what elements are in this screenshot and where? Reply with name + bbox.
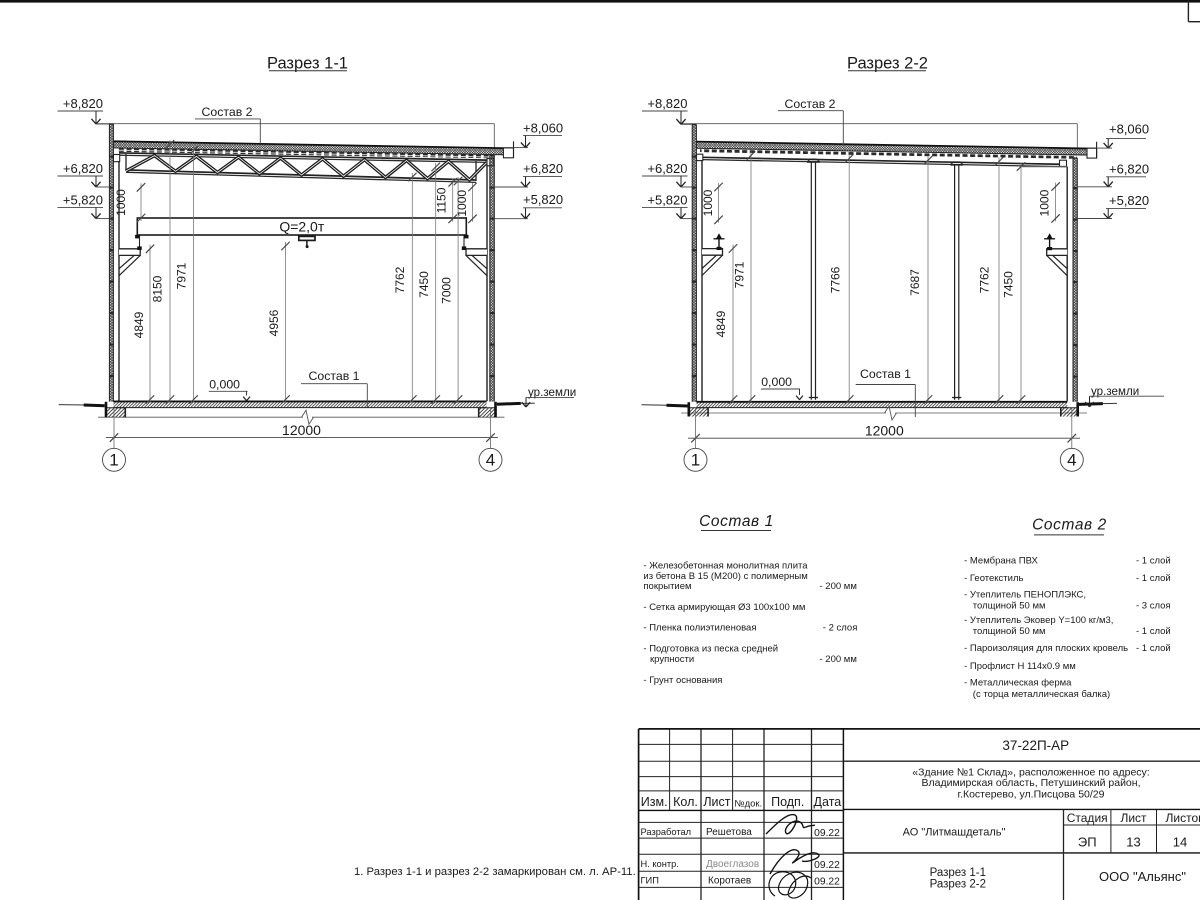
svg-text:14: 14	[1173, 835, 1187, 850]
svg-text:- 1 слой: - 1 слой	[1136, 643, 1171, 654]
svg-text:+6,820: +6,820	[1109, 162, 1149, 177]
svg-text:09.22: 09.22	[814, 876, 840, 887]
svg-text:ГИП: ГИП	[641, 875, 659, 885]
svg-text:1. Разрез 1-1 и разрез 2-2 зам: 1. Разрез 1-1 и разрез 2-2 замаркирован …	[354, 866, 636, 878]
svg-text:09.22: 09.22	[814, 828, 840, 839]
svg-text:Состав 1: Состав 1	[309, 369, 360, 383]
svg-text:Разрез 1-1: Разрез 1-1	[267, 55, 348, 73]
svg-text:7000: 7000	[439, 277, 453, 304]
svg-text:Состав 2: Состав 2	[202, 105, 253, 119]
svg-text:+5,820: +5,820	[63, 193, 103, 208]
svg-text:1000: 1000	[1037, 189, 1051, 216]
svg-text:4849: 4849	[132, 311, 146, 338]
svg-text:+6,820: +6,820	[523, 161, 563, 176]
svg-text:АО "Литмашдеталь": АО "Литмашдеталь"	[903, 827, 1006, 839]
svg-text:+6,820: +6,820	[647, 161, 687, 176]
svg-text:4: 4	[1067, 451, 1076, 470]
svg-text:7766: 7766	[829, 266, 843, 293]
svg-text:4956: 4956	[267, 309, 281, 336]
svg-text:1000: 1000	[114, 189, 128, 216]
svg-text:ООО "Альянс": ООО "Альянс"	[1099, 869, 1186, 884]
svg-text:+8,820: +8,820	[63, 96, 103, 111]
svg-text:7762: 7762	[978, 266, 992, 293]
svg-text:+5,820: +5,820	[1109, 193, 1149, 208]
svg-text:Разработал: Разработал	[641, 827, 692, 837]
svg-text:7687: 7687	[908, 269, 922, 296]
svg-text:- Мембрана ПВХ: - Мембрана ПВХ	[964, 556, 1038, 567]
svg-text:г.Костерево, ул.Писцова 50/29: г.Костерево, ул.Писцова 50/29	[958, 788, 1105, 800]
svg-text:- Металлическая ферма: - Металлическая ферма	[964, 678, 1072, 689]
svg-text:Лист: Лист	[1120, 811, 1147, 825]
svg-text:- 1 слой: - 1 слой	[1136, 556, 1171, 567]
svg-text:1: 1	[109, 451, 118, 470]
svg-text:Состав 2: Состав 2	[1032, 516, 1107, 533]
svg-text:Состав 2: Состав 2	[785, 97, 836, 111]
svg-text:толщиной 50 мм: толщиной 50 мм	[973, 626, 1046, 637]
svg-text:Стадия: Стадия	[1067, 811, 1108, 825]
svg-text:толщиной 50 мм: толщиной 50 мм	[973, 600, 1046, 611]
svg-text:13: 13	[1126, 835, 1140, 850]
svg-text:- 200 мм: - 200 мм	[820, 654, 857, 665]
svg-text:- 3 слоя: - 3 слоя	[1136, 600, 1171, 611]
svg-text:- Пароизоляция для плоских кро: - Пароизоляция для плоских кровель	[964, 643, 1128, 654]
svg-text:Подп.: Подп.	[771, 795, 804, 809]
svg-text:7450: 7450	[417, 271, 431, 298]
svg-text:Владимирская область, Петушинс: Владимирская область, Петушинский район,	[921, 777, 1140, 789]
svg-text:покрытием: покрытием	[643, 581, 691, 592]
svg-text:+5,820: +5,820	[647, 193, 687, 208]
svg-text:- Железобетонная монолитная п: - Железобетонная монолитная плита	[643, 560, 808, 571]
svg-text:Кол.: Кол.	[673, 795, 698, 809]
svg-text:№док.: №док.	[734, 799, 762, 810]
svg-text:Разрез 2-2: Разрез 2-2	[847, 55, 928, 73]
svg-text:ЭП: ЭП	[1078, 835, 1097, 850]
svg-text:- Пленка полиэтиленовая: - Пленка полиэтиленовая	[643, 623, 756, 634]
svg-text:- 200 мм: - 200 мм	[820, 581, 857, 592]
svg-text:Лист: Лист	[703, 795, 730, 809]
svg-text:- Геотекстиль: - Геотекстиль	[964, 573, 1023, 584]
svg-text:0,000: 0,000	[761, 375, 792, 389]
svg-text:(с торца металлическая балка): (с торца металлическая балка)	[973, 689, 1110, 700]
svg-text:4: 4	[486, 451, 495, 470]
svg-text:7762: 7762	[393, 266, 407, 293]
svg-text:8150: 8150	[151, 275, 165, 302]
svg-text:- Профлист Н 114x0.9 мм: - Профлист Н 114x0.9 мм	[964, 661, 1076, 672]
svg-text:1000: 1000	[701, 189, 715, 216]
svg-text:крупности: крупности	[650, 654, 694, 665]
svg-text:37-22П-АР: 37-22П-АР	[1002, 738, 1069, 753]
svg-text:Разрез 2-2: Разрез 2-2	[930, 879, 986, 891]
svg-text:- 1 слой: - 1 слой	[1136, 573, 1171, 584]
svg-text:- 2 слоя: - 2 слоя	[823, 623, 858, 634]
svg-text:Q=2,0т: Q=2,0т	[279, 219, 325, 235]
svg-text:Двоеглазов: Двоеглазов	[706, 859, 759, 870]
svg-text:- Утеплитель Эковер Y=100 кг/м: - Утеплитель Эковер Y=100 кг/м3,	[964, 615, 1113, 626]
svg-text:+6,820: +6,820	[63, 161, 103, 176]
svg-text:7971: 7971	[174, 262, 188, 289]
svg-text:12000: 12000	[282, 422, 321, 438]
svg-text:+8,060: +8,060	[523, 121, 563, 136]
svg-text:Состав 1: Состав 1	[699, 513, 774, 530]
svg-text:Дата: Дата	[814, 795, 842, 809]
svg-text:+8,820: +8,820	[647, 96, 687, 111]
svg-text:0,000: 0,000	[209, 377, 240, 391]
svg-text:7450: 7450	[1002, 271, 1016, 298]
svg-text:- 1 слой: - 1 слой	[1136, 626, 1171, 637]
svg-text:+5,820: +5,820	[523, 192, 563, 207]
svg-text:- Сетка армирующая Ø3 100x100: - Сетка армирующая Ø3 100x100 мм	[643, 602, 805, 613]
svg-text:+8,060: +8,060	[1109, 122, 1149, 137]
svg-text:Листов: Листов	[1166, 811, 1200, 825]
svg-text:1: 1	[691, 451, 700, 470]
svg-text:Состав 1: Состав 1	[860, 367, 911, 381]
svg-text:Изм.: Изм.	[641, 795, 668, 809]
svg-text:Разрез 1-1: Разрез 1-1	[930, 867, 986, 879]
svg-text:1000: 1000	[455, 190, 469, 217]
svg-text:7971: 7971	[733, 261, 747, 288]
svg-text:Решетова: Решетова	[706, 827, 752, 838]
svg-text:1150: 1150	[434, 187, 448, 213]
svg-text:12000: 12000	[865, 422, 904, 438]
svg-text:- Грунт основания: - Грунт основания	[643, 675, 722, 686]
svg-text:4849: 4849	[714, 310, 728, 337]
svg-text:Н. контр.: Н. контр.	[641, 859, 679, 869]
svg-text:- Утеплитель ПЕНОПЛЭКС,: - Утеплитель ПЕНОПЛЭКС,	[964, 589, 1086, 600]
svg-text:Коротаев: Коротаев	[708, 875, 751, 886]
svg-text:09.22: 09.22	[814, 860, 840, 871]
